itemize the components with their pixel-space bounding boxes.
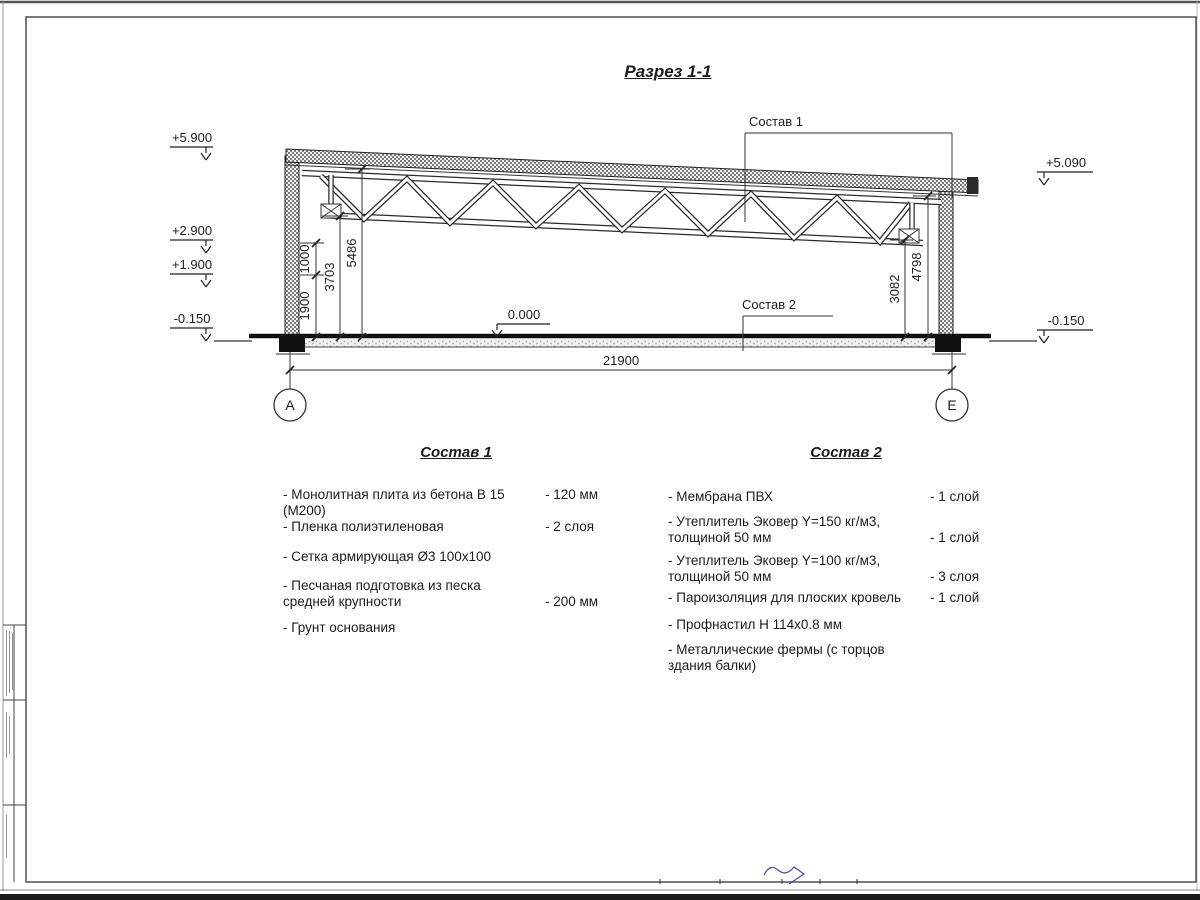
material-row: - Металлические фермы (с торцов здания б…	[668, 642, 1008, 658]
axis-markers: А Е	[274, 389, 968, 421]
material-value: - 1 слой	[930, 590, 979, 606]
material-value: - 1 слой	[930, 530, 979, 546]
material-name: - Металлические фермы (с торцов здания б…	[668, 642, 930, 674]
material-name: - Песчаная подготовка из песка средней к…	[283, 578, 545, 610]
material-value: - 120 мм	[545, 487, 598, 503]
elevation-minus-0150-left: -0.150	[174, 311, 211, 326]
elevation-1900: +1.900	[172, 257, 212, 272]
page-title: Разрез 1-1	[548, 62, 788, 82]
title-block-strip	[3, 625, 26, 882]
dimension-span: 21900	[286, 352, 956, 389]
composition1-title: Состав 1	[391, 444, 521, 461]
wall-right	[939, 187, 953, 337]
material-name: - Мембрана ПВХ	[668, 489, 930, 505]
material-row: - Утеплитель Эковер Y=150 кг/м3, толщино…	[668, 514, 1008, 546]
drawing-sheet: 1900 1000 3703 5486 3082 4798 21900 А Е	[0, 0, 1200, 900]
material-name: - Грунт основания	[283, 620, 545, 636]
axis-letter-a: А	[285, 397, 295, 413]
material-name: - Сетка армирующая Ø3 100х100	[283, 549, 545, 565]
dim-5486: 5486	[344, 239, 359, 268]
zero-level-text: 0.000	[508, 307, 541, 322]
material-name: - Утеплитель Эковер Y=150 кг/м3, толщино…	[668, 514, 930, 546]
composition2-title: Состав 2	[781, 444, 911, 461]
material-row: - Пленка полиэтиленовая - 2 слоя	[283, 519, 623, 535]
dim-1900: 1900	[297, 292, 312, 321]
elevation-5090: +5.090	[1046, 155, 1086, 170]
callout-sostav-2-label: Состав 2	[742, 297, 796, 312]
dim-3703: 3703	[322, 263, 337, 292]
material-row: - Монолитная плита из бетона В 15 (М200)…	[283, 487, 623, 503]
elevation-marks-right: +5.090 -0.150	[1037, 155, 1093, 343]
elevation-minus-0150-right: -0.150	[1048, 313, 1085, 328]
dim-1000: 1000	[297, 245, 312, 274]
section-drawing: 1900 1000 3703 5486 3082 4798 21900 А Е	[0, 0, 1200, 900]
material-row: - Мембрана ПВХ - 1 слой	[668, 489, 1008, 505]
material-value: - 3 слоя	[930, 569, 979, 585]
callout-sostav-1-label: Состав 1	[749, 114, 803, 129]
material-row: - Грунт основания	[283, 620, 623, 636]
floor-slab	[214, 336, 1037, 347]
material-row: - Пароизоляция для плоских кровель - 1 с…	[668, 590, 1008, 606]
elevation-2900: +2.900	[172, 223, 212, 238]
material-name: - Монолитная плита из бетона В 15 (М200)	[283, 487, 545, 519]
zero-level-mark: 0.000	[492, 307, 550, 337]
material-value: - 1 слой	[930, 489, 979, 505]
material-value: - 2 слоя	[545, 519, 594, 535]
callout-sostav-1: Состав 1	[745, 114, 952, 222]
material-name: - Пароизоляция для плоских кровель	[668, 590, 930, 606]
dim-4798: 4798	[909, 253, 924, 282]
elevation-marks-left: +5.900 +2.900 +1.900 -0.150	[170, 130, 213, 341]
material-row: - Сетка армирующая Ø3 100х100	[283, 549, 623, 565]
material-name: - Утеплитель Эковер Y=100 кг/м3, толщино…	[668, 553, 930, 585]
material-value: - 200 мм	[545, 594, 598, 610]
material-name: - Профнастил Н 114х0.8 мм	[668, 617, 930, 633]
material-row: - Профнастил Н 114х0.8 мм	[668, 617, 1008, 633]
dim-3082: 3082	[887, 275, 902, 304]
material-row: - Песчаная подготовка из песка средней к…	[283, 578, 623, 610]
dim-21900: 21900	[603, 353, 639, 368]
material-row: - Утеплитель Эковер Y=100 кг/м3, толщино…	[668, 553, 1008, 585]
elevation-5900: +5.900	[172, 130, 212, 145]
axis-letter-e: Е	[947, 397, 956, 413]
material-name: - Пленка полиэтиленовая	[283, 519, 545, 535]
